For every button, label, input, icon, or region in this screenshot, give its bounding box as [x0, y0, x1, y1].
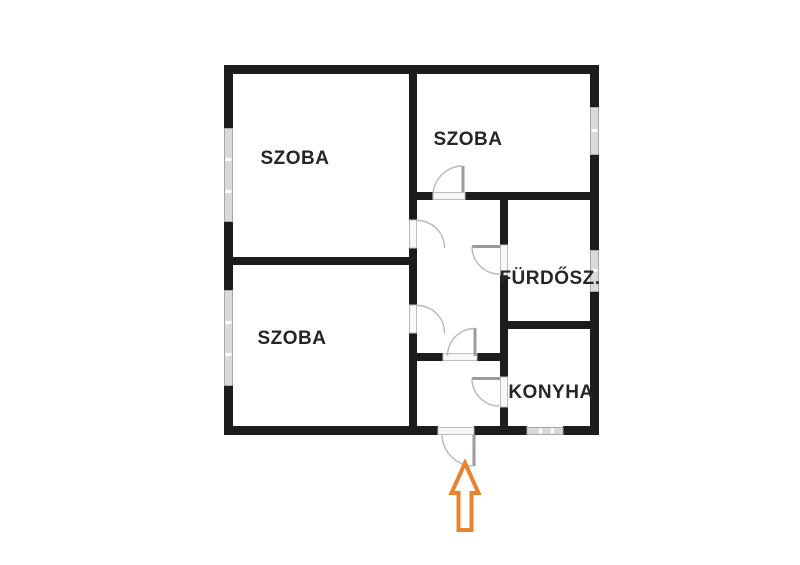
door-topleft-room [410, 220, 445, 248]
window-kitchen-bottom [527, 428, 563, 435]
wall-bottom-middle [474, 426, 527, 435]
wall-bath-kitchen-divider [508, 321, 590, 329]
wall-topright-room-bottom-a [417, 192, 433, 200]
room-labels: SZOBA SZOBA SZOBA FÜRDŐSZ. KONYHA [258, 129, 601, 403]
inner-walls [233, 74, 590, 426]
wall-bath-kitchen-vertical-middle [500, 275, 508, 377]
wall-bottom-left [224, 426, 438, 435]
room-label-szoba-bottom-left: SZOBA [258, 328, 327, 349]
room-label-kitchen: KONYHA [508, 382, 593, 403]
wall-bottom-right [563, 426, 599, 435]
floorplan-canvas: SZOBA SZOBA SZOBA FÜRDŐSZ. KONYHA [0, 0, 800, 565]
wall-top [224, 65, 599, 74]
wall-center-vertical-lower [409, 333, 417, 426]
door-entrance [438, 428, 474, 467]
wall-topright-room-bottom-b [465, 192, 590, 200]
window-left-upper [225, 129, 233, 222]
room-label-szoba-top-left: SZOBA [261, 148, 330, 169]
entrance-arrow-icon [452, 463, 479, 530]
room-label-szoba-top-right: SZOBA [434, 129, 503, 150]
wall-bath-kitchen-vertical-upper [500, 200, 508, 245]
window-right-upper [591, 108, 599, 155]
door-bottomleft-room [410, 305, 445, 333]
door-topright-room [433, 166, 465, 200]
doors [410, 166, 508, 466]
wall-center-vertical-middle [409, 248, 417, 305]
wall-left-upper [224, 65, 233, 128]
wall-hall-entry-b [477, 353, 500, 361]
window-left-lower [225, 291, 233, 386]
wall-left-middle [224, 222, 233, 290]
wall-hall-entry-a [409, 353, 443, 361]
door-kitchen [472, 377, 508, 407]
wall-left-rooms-divider [233, 257, 409, 265]
wall-bath-kitchen-vertical-lower [500, 407, 508, 426]
floorplan-drawing: SZOBA SZOBA SZOBA FÜRDŐSZ. KONYHA [0, 0, 800, 565]
room-label-bathroom: FÜRDŐSZ. [499, 267, 600, 289]
wall-right-upper [590, 65, 599, 107]
wall-center-vertical-upper [409, 74, 417, 220]
door-hall-entry [443, 328, 477, 361]
wall-right-lower [590, 292, 599, 435]
wall-right-middle [590, 155, 599, 250]
